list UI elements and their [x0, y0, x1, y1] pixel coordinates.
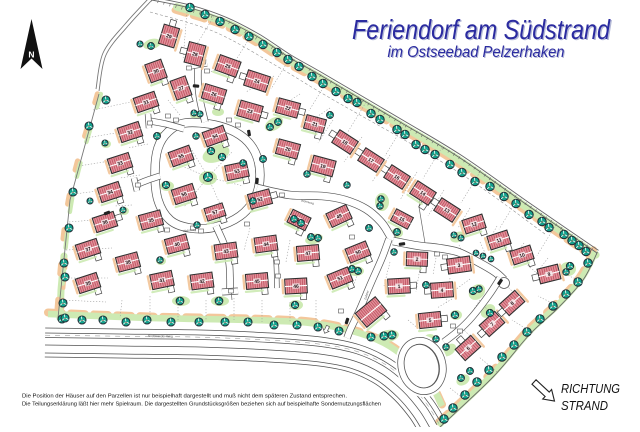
- svg-text:Südstrander Weg: Südstrander Weg: [148, 334, 173, 338]
- svg-text:im Ostseebad Pelzerhaken: im Ostseebad Pelzerhaken: [388, 44, 565, 61]
- svg-text:43: 43: [223, 249, 229, 256]
- svg-text:Die Teilungserklärung läßt hie: Die Teilungserklärung läßt hier mehr Spi…: [22, 402, 381, 408]
- svg-text:N: N: [28, 50, 34, 60]
- svg-text:42: 42: [199, 279, 205, 286]
- svg-text:Die Position der Häuser auf de: Die Position der Häuser auf den Parzelle…: [22, 394, 347, 400]
- svg-text:46: 46: [293, 284, 299, 290]
- svg-text:STRAND: STRAND: [561, 399, 608, 413]
- svg-text:47: 47: [305, 251, 311, 257]
- svg-text:RICHTUNG: RICHTUNG: [561, 382, 620, 396]
- svg-text:Feriendorf am Südstrand: Feriendorf am Südstrand: [352, 14, 611, 45]
- svg-text:2: 2: [415, 257, 418, 263]
- svg-text:45: 45: [254, 279, 260, 285]
- svg-text:44: 44: [263, 242, 269, 249]
